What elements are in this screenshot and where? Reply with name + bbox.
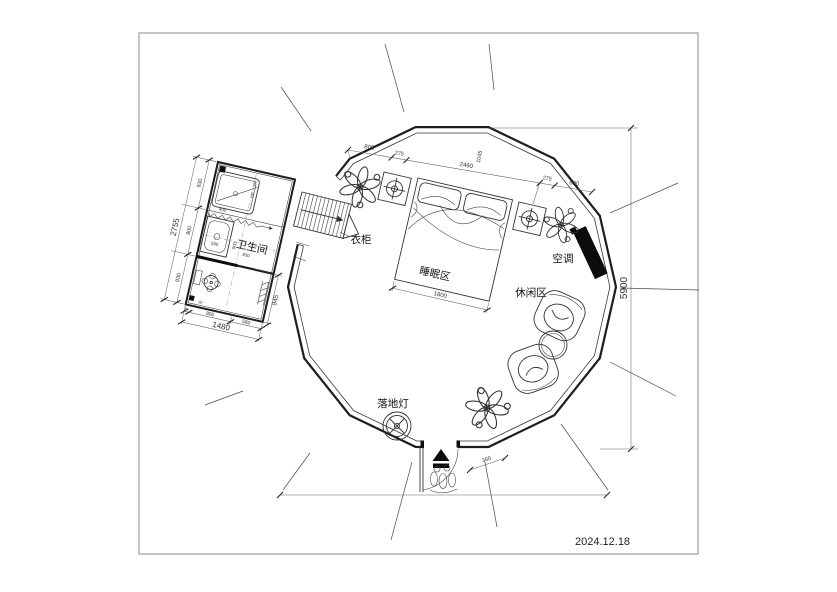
drawing-date: 2024.12.18 bbox=[575, 536, 630, 548]
wardrobe: 衣柜 bbox=[294, 192, 372, 246]
ceiling-lamp-icon bbox=[516, 206, 542, 232]
nightstand-left bbox=[378, 172, 412, 206]
air-conditioner-label: 空调 bbox=[553, 252, 574, 265]
ceiling-lamp-icon bbox=[381, 176, 407, 202]
bathroom: 400 150 190 550 900 930 卫生间 90 bbox=[150, 152, 307, 345]
nightstand-right bbox=[513, 202, 547, 236]
floor-plan-canvas: 380 805 275 2460 1045 275 690 5900 bbox=[0, 0, 837, 592]
armchair-lower bbox=[504, 340, 562, 397]
dim-bed-width: 1800 bbox=[433, 291, 448, 300]
dim-top-3: 2460 bbox=[459, 162, 474, 170]
dim-top-6: 690 bbox=[569, 180, 581, 188]
bed: 睡眠区 1800 bbox=[389, 177, 515, 313]
air-conditioner: 空调 bbox=[553, 222, 608, 280]
dim-bottom-2: 580 bbox=[241, 319, 251, 327]
dim-tub-b: 190 bbox=[250, 192, 255, 199]
dim-left-total: 2755 bbox=[169, 217, 182, 237]
dim-top-2: 275 bbox=[394, 150, 404, 158]
dim-sink-width: 550 bbox=[211, 241, 220, 248]
exhaust-fan-icon bbox=[200, 271, 222, 293]
dim-tub-width: 400 bbox=[218, 206, 227, 213]
dim-right-side: 945 bbox=[271, 294, 280, 307]
dim-top-4: 1045 bbox=[476, 150, 484, 163]
plant-icon bbox=[541, 204, 582, 246]
dim-bottom-1: 800 bbox=[205, 311, 215, 319]
leisure-area-label: 休闲区 bbox=[515, 286, 547, 299]
floor-lamp-label: 落地灯 bbox=[377, 397, 409, 410]
bathroom-label: 卫生间 bbox=[235, 237, 269, 257]
dim-bottom-corner: 90 bbox=[184, 307, 189, 312]
sleeping-area-label: 睡眠区 bbox=[418, 264, 452, 284]
dim-bottom-total: 1480 bbox=[212, 320, 232, 333]
room-walls bbox=[288, 127, 616, 447]
plant-icon bbox=[457, 378, 517, 438]
floor-lamp-icon bbox=[383, 412, 411, 440]
bathroom-left-dimensions: 930 900 930 2755 bbox=[154, 152, 217, 307]
dim-corner: 90 bbox=[198, 300, 203, 305]
door-offset-dimension: 380 bbox=[467, 455, 508, 473]
dim-top-5: 275 bbox=[542, 175, 552, 183]
bathroom-bottom-dimensions: 90 800 580 1480 bbox=[178, 304, 266, 343]
wardrobe-label: 衣柜 bbox=[351, 233, 372, 246]
dim-tub-a: 150 bbox=[252, 180, 257, 187]
top-dimension-chain: 805 275 2460 1045 275 690 bbox=[345, 144, 595, 204]
dim-overall-height: 5900 bbox=[619, 276, 630, 299]
floor-lamp: 落地灯 bbox=[377, 397, 411, 440]
